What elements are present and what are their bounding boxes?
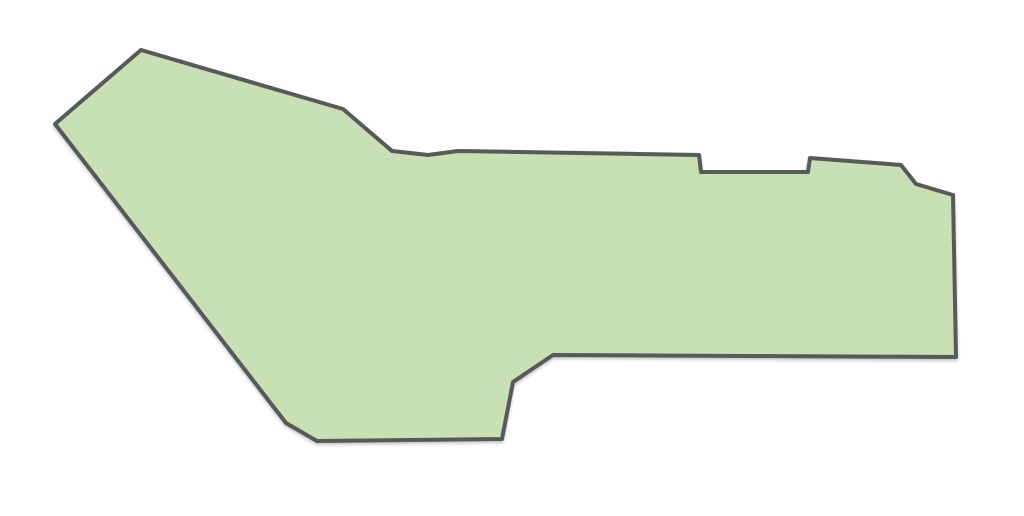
region-polygon (55, 50, 956, 441)
map-canvas (0, 0, 1024, 516)
map-svg (0, 0, 1024, 516)
